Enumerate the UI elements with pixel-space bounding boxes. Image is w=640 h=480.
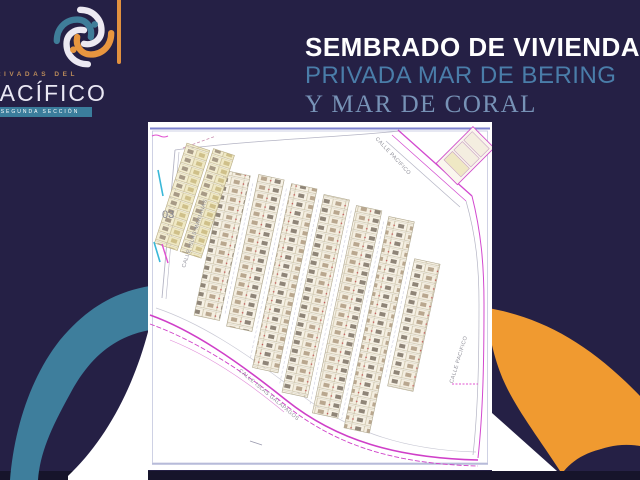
slide: CALLE ISLAS MARIANAS CALLE PACIFICO CALL…	[0, 0, 640, 480]
logo-top-text: PRIVADAS DEL	[0, 71, 78, 78]
logo-knot-icon	[34, 4, 134, 72]
logo-name: PACÍFICO	[0, 80, 107, 107]
page-subtitle-2: Y MAR DE CORAL	[305, 92, 640, 117]
zone-label: 03	[162, 209, 174, 221]
logo: PRIVADAS DEL PACÍFICO SEGUNDA SECCIÓN	[0, 0, 150, 122]
site-plan-map: CALLE ISLAS MARIANAS CALLE PACIFICO CALL…	[148, 122, 494, 470]
logo-section-text: SEGUNDA SECCIÓN	[1, 109, 80, 115]
title-block: SEMBRADO DE VIVIENDA PRIVADA MAR DE BERI…	[305, 34, 640, 117]
page-subtitle-1: PRIVADA MAR DE BERING	[305, 64, 640, 88]
page-title: SEMBRADO DE VIVIENDA	[305, 34, 640, 60]
logo-section-ribbon: SEGUNDA SECCIÓN	[0, 107, 92, 117]
